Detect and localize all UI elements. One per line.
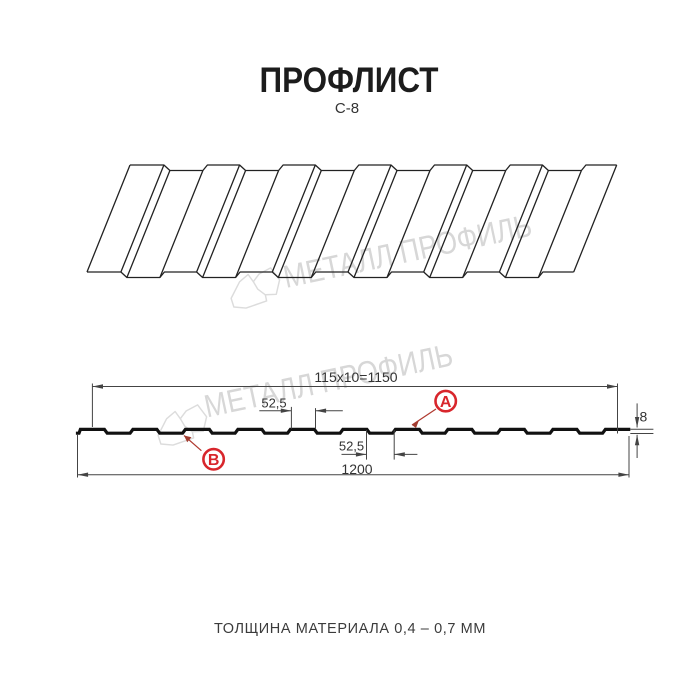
svg-text:52,5: 52,5 [261, 396, 286, 411]
svg-text:ПРОФЛИСТ: ПРОФЛИСТ [260, 61, 439, 100]
svg-text:8: 8 [640, 409, 648, 425]
svg-text:1200: 1200 [341, 461, 372, 477]
svg-text:С-8: С-8 [335, 100, 359, 117]
svg-text:А: А [440, 394, 452, 411]
svg-text:МЕТАЛЛ ПРОФИЛЬ: МЕТАЛЛ ПРОФИЛЬ [280, 207, 535, 295]
svg-text:ТОЛЩИНА МАТЕРИАЛА 0,4 – 0,7 ММ: ТОЛЩИНА МАТЕРИАЛА 0,4 – 0,7 ММ [214, 621, 486, 637]
svg-text:115x10=1150: 115x10=1150 [314, 369, 397, 385]
svg-text:В: В [208, 452, 220, 469]
svg-text:52,5: 52,5 [339, 439, 364, 454]
